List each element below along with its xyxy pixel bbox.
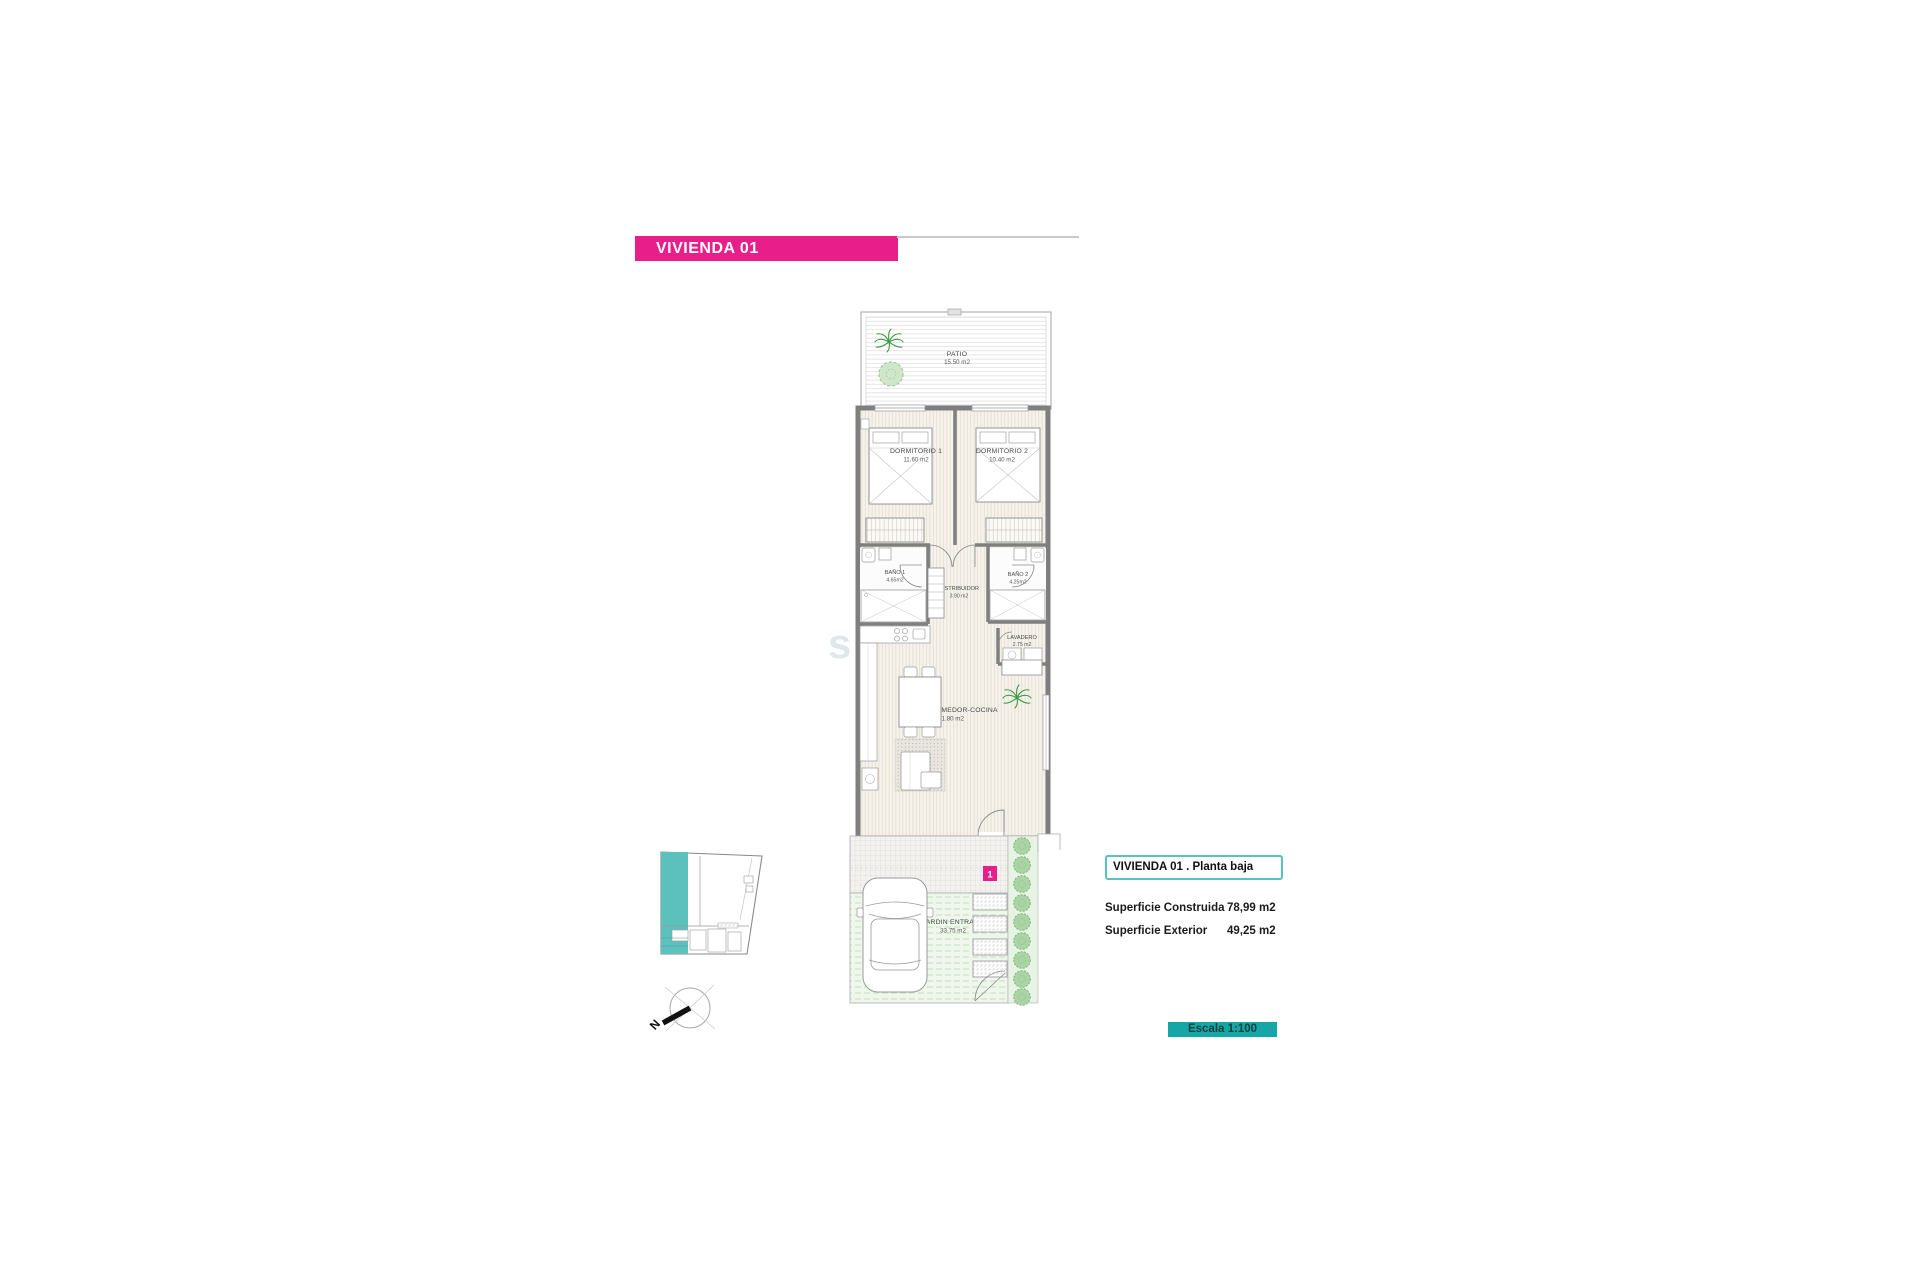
room-label: DORMITORIO 1 bbox=[890, 448, 942, 455]
sink-icon bbox=[1014, 548, 1026, 560]
room-area: 15.50 m2 bbox=[944, 359, 970, 366]
north-label: N bbox=[647, 1017, 663, 1033]
sofa-icon bbox=[895, 739, 945, 791]
compass-icon: N bbox=[628, 975, 728, 1047]
closet-icon bbox=[1002, 660, 1042, 675]
info-panel: VIVIENDA 01 . Planta baja Superficie Con… bbox=[1105, 855, 1305, 948]
room-area: 10.40 m2 bbox=[989, 457, 1015, 464]
bed-icon bbox=[869, 428, 932, 504]
window bbox=[1043, 695, 1049, 770]
key-plan bbox=[648, 845, 773, 960]
room-area: 4.25m2 bbox=[1009, 580, 1026, 586]
unit-marker-badge: 1 bbox=[983, 866, 997, 881]
surface-exterior-row: Superficie Exterior 49,25 m2 bbox=[1105, 925, 1305, 937]
surface-built-row: Superficie Construida 78,99 m2 bbox=[1105, 902, 1305, 914]
page: { "title_bar": { "label": "VIVIENDA 01" … bbox=[0, 0, 1920, 1280]
room-patio: PATIO 15.50 m2 bbox=[861, 309, 1051, 409]
surface-exterior-label: Superficie Exterior bbox=[1105, 925, 1227, 937]
room-area: 4.65m2 bbox=[886, 578, 903, 584]
hedge-bushes bbox=[1014, 838, 1031, 1006]
boundary-notch bbox=[1038, 834, 1060, 852]
room-area: 2.75 m2 bbox=[1013, 642, 1032, 648]
toilet-icon bbox=[1031, 548, 1044, 562]
room-area: 31.80 m2 bbox=[938, 716, 964, 723]
surface-built-value: 78,99 m2 bbox=[1227, 902, 1297, 914]
car-icon bbox=[857, 878, 933, 992]
svg-text:1: 1 bbox=[987, 870, 993, 881]
room-area: 33.75 m2 bbox=[940, 928, 966, 935]
patio-drain bbox=[948, 309, 961, 315]
sink-icon bbox=[879, 548, 891, 560]
nightstand bbox=[861, 419, 869, 429]
surface-exterior-value: 49,25 m2 bbox=[1227, 925, 1297, 937]
room-label: DISTRIBUIDOR bbox=[939, 586, 979, 592]
scale-badge: Escala 1:100 bbox=[1168, 1022, 1277, 1037]
unit-floor-title: VIVIENDA 01 . Planta baja bbox=[1105, 855, 1283, 880]
room-area: 11.60 m2 bbox=[903, 457, 929, 464]
page-title: VIVIENDA 01 bbox=[635, 236, 898, 261]
room-label: BAÑO 2 bbox=[1008, 571, 1029, 578]
room-jardin: JARDIN ENTRADA 33.75 m2 bbox=[850, 834, 1060, 1005]
bed-icon bbox=[976, 428, 1040, 502]
room-dormitorio-2: DORMITORIO 2 10.40 m2 bbox=[976, 428, 1042, 542]
title-rule bbox=[897, 236, 1079, 238]
room-area: 3.90 m2 bbox=[950, 594, 969, 600]
shower-icon bbox=[990, 590, 1045, 620]
surface-built-label: Superficie Construida bbox=[1105, 902, 1227, 914]
room-label: LAVADERO bbox=[1007, 635, 1037, 641]
bush-icon bbox=[879, 362, 903, 386]
floor-plan: PATIO 15.50 m2 DORMITORIO 1 11.60 m2 bbox=[840, 302, 1072, 1008]
shelf-icon bbox=[928, 568, 944, 618]
toilet-icon bbox=[862, 548, 875, 562]
dining-table-icon bbox=[899, 667, 941, 737]
shower-icon bbox=[861, 590, 926, 622]
room-label: PATIO bbox=[947, 351, 967, 358]
room-label: DORMITORIO 2 bbox=[976, 448, 1028, 455]
